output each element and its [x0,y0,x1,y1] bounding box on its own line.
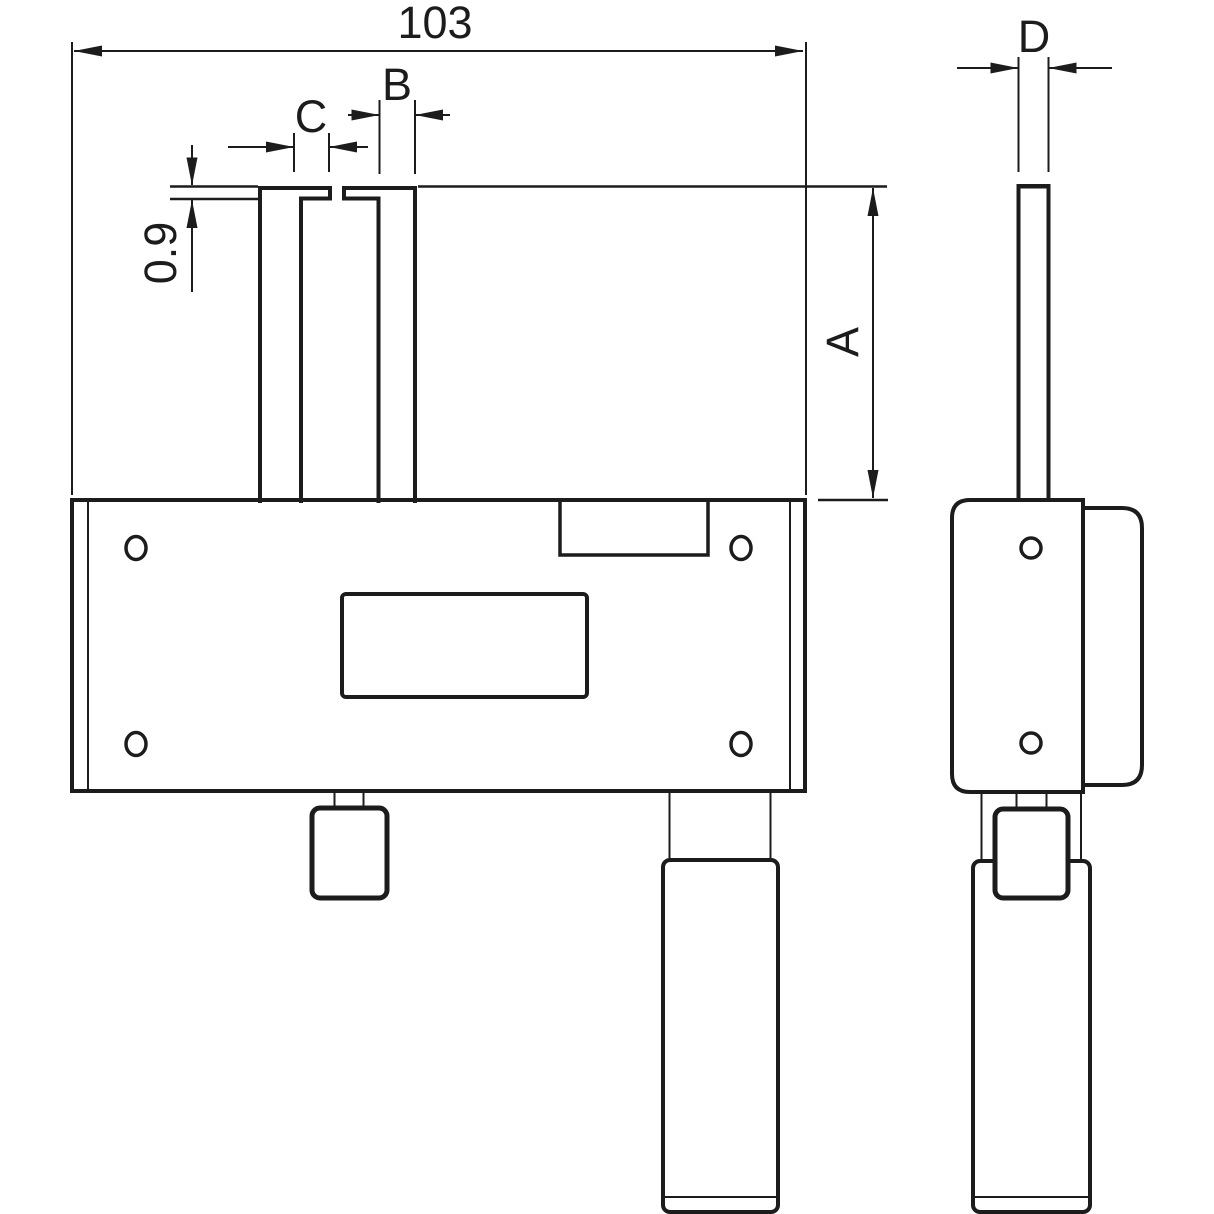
dim-b-arrow-left [352,110,380,121]
front-left-jaw [260,188,330,503]
dim-blade-length: A [817,188,888,500]
dim-09-arrow-down [187,158,198,186]
side-hole-bottom [1021,733,1041,753]
dim-label-overall-width: 103 [397,0,472,48]
front-clamp-knob [312,808,387,898]
drawing-svg: 103 0.9 C [0,0,1214,1214]
front-view [72,187,887,1213]
front-right-jaw [344,188,415,503]
dim-103-arrow-left [74,46,102,57]
technical-drawing: 103 0.9 C [0,0,1214,1214]
side-clamp-knob [995,809,1068,898]
dim-c-arrow-left [266,142,294,153]
front-hole-bottom-right [731,733,751,756]
front-display-window [342,594,587,697]
dim-c-arrow-right [329,142,357,153]
front-handle [663,860,778,1212]
side-blade [1019,186,1049,500]
front-hole-top-right [731,537,751,560]
dim-tip-length: C [228,91,368,172]
dim-label-tip-thickness: 0.9 [135,222,186,285]
side-handle [973,861,1090,1212]
dim-a-arrow-up [868,188,879,216]
dim-label-blade-length: A [817,327,868,357]
dim-tip-thickness: 0.9 [135,145,258,292]
side-rear-block [1083,508,1142,785]
dim-label-blade-thickness: D [1018,11,1051,62]
dim-d-arrow-left [991,63,1019,74]
dim-blade-thickness: D [957,11,1112,172]
dim-blade-width: B [348,59,450,174]
dim-label-tip-length: C [295,91,328,142]
side-body-panel [952,500,1083,792]
side-view [952,186,1142,1212]
front-hole-top-left [126,537,146,560]
dim-d-arrow-right [1049,63,1077,74]
side-hole-top [1021,538,1041,558]
dim-09-arrow-up [187,200,198,228]
dim-103-arrow-right [775,46,803,57]
front-hole-bottom-left [126,733,146,756]
dim-a-arrow-down [868,470,879,498]
dim-label-blade-width: B [382,59,412,110]
dim-b-arrow-right [415,110,443,121]
